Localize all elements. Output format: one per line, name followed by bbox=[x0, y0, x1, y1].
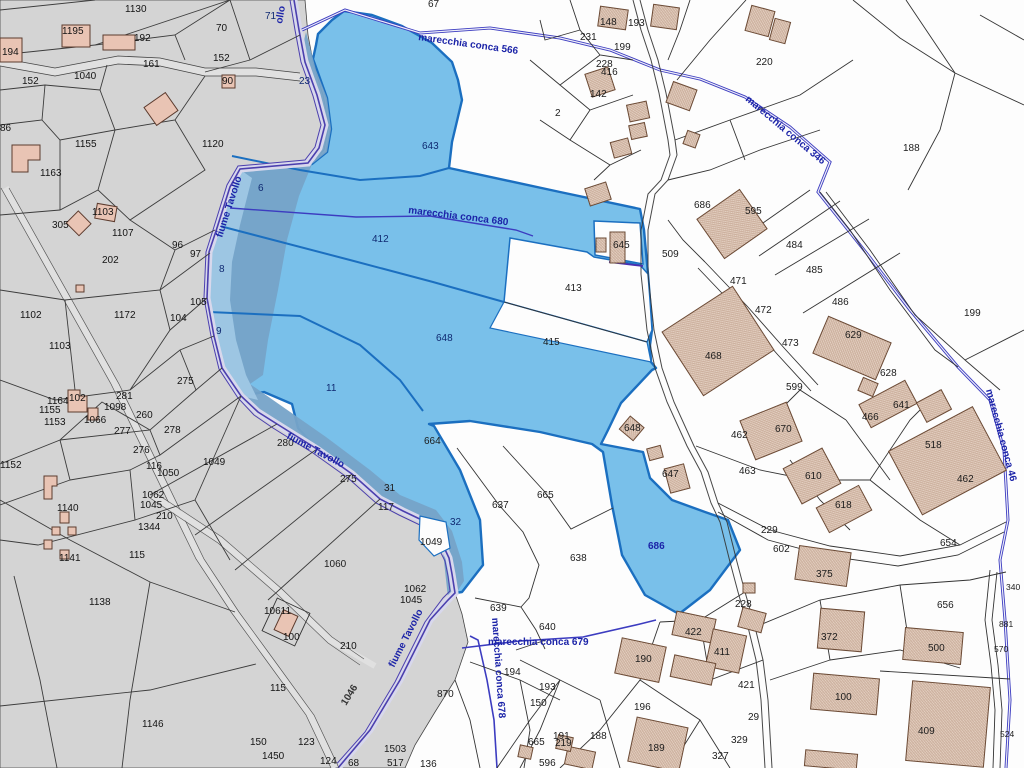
svg-text:881: 881 bbox=[999, 619, 1013, 629]
svg-text:32: 32 bbox=[450, 517, 462, 528]
svg-text:1040: 1040 bbox=[74, 71, 97, 82]
svg-text:275: 275 bbox=[340, 474, 357, 485]
svg-text:102: 102 bbox=[69, 393, 86, 404]
svg-text:194: 194 bbox=[504, 667, 521, 678]
svg-text:6: 6 bbox=[258, 183, 264, 194]
svg-text:199: 199 bbox=[614, 42, 631, 53]
svg-text:1045: 1045 bbox=[140, 500, 163, 511]
svg-text:664: 664 bbox=[424, 436, 441, 447]
svg-text:472: 472 bbox=[755, 305, 772, 316]
svg-text:468: 468 bbox=[705, 351, 722, 362]
svg-text:276: 276 bbox=[133, 445, 150, 456]
svg-text:485: 485 bbox=[806, 265, 823, 276]
svg-text:210: 210 bbox=[340, 641, 357, 652]
svg-text:1152: 1152 bbox=[0, 460, 22, 471]
svg-text:1120: 1120 bbox=[202, 139, 224, 150]
svg-text:1146: 1146 bbox=[142, 719, 164, 730]
svg-text:340: 340 bbox=[1006, 582, 1020, 592]
svg-text:136: 136 bbox=[420, 759, 437, 768]
svg-text:670: 670 bbox=[775, 424, 792, 435]
svg-text:70: 70 bbox=[216, 23, 228, 34]
svg-text:484: 484 bbox=[786, 240, 803, 251]
svg-text:643: 643 bbox=[422, 141, 439, 152]
svg-text:1103: 1103 bbox=[49, 341, 71, 352]
svg-text:462: 462 bbox=[731, 430, 748, 441]
svg-text:570: 570 bbox=[994, 644, 1008, 654]
svg-text:409: 409 bbox=[918, 726, 935, 737]
svg-text:115: 115 bbox=[129, 550, 145, 561]
svg-text:124: 124 bbox=[320, 756, 337, 767]
svg-text:462: 462 bbox=[957, 474, 974, 485]
svg-text:517: 517 bbox=[387, 758, 404, 768]
svg-text:8: 8 bbox=[219, 264, 225, 275]
svg-text:637: 637 bbox=[492, 500, 509, 511]
svg-text:1098: 1098 bbox=[104, 402, 127, 413]
svg-text:648: 648 bbox=[624, 423, 641, 434]
svg-text:117: 117 bbox=[378, 502, 394, 513]
svg-text:329: 329 bbox=[731, 735, 748, 746]
svg-text:463: 463 bbox=[739, 466, 756, 477]
svg-text:1141: 1141 bbox=[59, 553, 81, 564]
svg-text:411: 411 bbox=[714, 647, 730, 658]
svg-text:471: 471 bbox=[730, 276, 747, 287]
svg-text:638: 638 bbox=[570, 553, 587, 564]
svg-text:202: 202 bbox=[102, 255, 119, 266]
svg-text:618: 618 bbox=[835, 500, 852, 511]
svg-text:228: 228 bbox=[735, 599, 752, 610]
svg-text:150: 150 bbox=[250, 737, 267, 748]
svg-text:656: 656 bbox=[937, 600, 954, 611]
svg-text:305: 305 bbox=[52, 220, 69, 231]
svg-text:1503: 1503 bbox=[384, 744, 407, 755]
svg-text:486: 486 bbox=[832, 297, 849, 308]
svg-text:2: 2 bbox=[555, 108, 561, 119]
svg-text:524: 524 bbox=[1000, 729, 1014, 739]
svg-text:599: 599 bbox=[786, 382, 803, 393]
svg-text:marecchia conca 679: marecchia conca 679 bbox=[488, 637, 589, 648]
svg-text:67: 67 bbox=[428, 0, 440, 10]
svg-text:229: 229 bbox=[761, 525, 778, 536]
svg-text:188: 188 bbox=[590, 731, 607, 742]
svg-text:190: 190 bbox=[635, 654, 652, 665]
svg-text:199: 199 bbox=[964, 308, 981, 319]
svg-text:372: 372 bbox=[821, 632, 838, 643]
svg-text:473: 473 bbox=[782, 338, 799, 349]
svg-text:1045: 1045 bbox=[400, 595, 423, 606]
svg-text:275: 275 bbox=[177, 376, 194, 387]
svg-text:192: 192 bbox=[134, 33, 151, 44]
svg-text:415: 415 bbox=[543, 337, 560, 348]
svg-text:421: 421 bbox=[738, 680, 755, 691]
svg-text:648: 648 bbox=[436, 333, 453, 344]
svg-text:260: 260 bbox=[136, 410, 153, 421]
svg-text:188: 188 bbox=[903, 143, 920, 154]
svg-text:640: 640 bbox=[539, 622, 556, 633]
svg-text:189: 189 bbox=[648, 743, 665, 754]
svg-text:1450: 1450 bbox=[262, 751, 285, 762]
svg-text:11: 11 bbox=[326, 383, 337, 394]
svg-text:220: 220 bbox=[756, 57, 773, 68]
svg-text:148: 148 bbox=[600, 17, 617, 28]
svg-text:9: 9 bbox=[216, 326, 222, 337]
svg-text:68: 68 bbox=[348, 758, 360, 768]
svg-text:1066: 1066 bbox=[84, 415, 107, 426]
svg-text:1153: 1153 bbox=[44, 417, 66, 428]
svg-text:115: 115 bbox=[270, 683, 286, 694]
svg-text:1140: 1140 bbox=[57, 503, 79, 514]
svg-text:1195: 1195 bbox=[62, 26, 84, 37]
svg-text:1062: 1062 bbox=[404, 584, 427, 595]
svg-text:100: 100 bbox=[835, 692, 852, 703]
svg-text:281: 281 bbox=[116, 391, 133, 402]
svg-text:628: 628 bbox=[880, 368, 897, 379]
svg-text:413: 413 bbox=[565, 283, 582, 294]
svg-text:29: 29 bbox=[748, 712, 760, 723]
svg-text:665: 665 bbox=[528, 737, 545, 748]
svg-text:142: 142 bbox=[590, 89, 607, 100]
svg-text:327: 327 bbox=[712, 751, 729, 762]
svg-text:196: 196 bbox=[634, 702, 651, 713]
svg-text:654: 654 bbox=[940, 538, 957, 549]
svg-text:422: 422 bbox=[685, 627, 702, 638]
svg-text:31: 31 bbox=[384, 483, 396, 494]
svg-text:595: 595 bbox=[745, 206, 762, 217]
svg-text:210: 210 bbox=[156, 511, 173, 522]
svg-text:645: 645 bbox=[613, 240, 630, 251]
svg-text:100: 100 bbox=[283, 632, 300, 643]
svg-text:602: 602 bbox=[773, 544, 790, 555]
svg-text:412: 412 bbox=[372, 234, 389, 245]
svg-text:665: 665 bbox=[537, 490, 554, 501]
svg-text:97: 97 bbox=[190, 249, 202, 260]
svg-text:1060: 1060 bbox=[324, 559, 347, 570]
svg-text:647: 647 bbox=[662, 469, 679, 480]
svg-text:686: 686 bbox=[694, 200, 711, 211]
svg-text:23: 23 bbox=[299, 76, 311, 87]
svg-text:641: 641 bbox=[893, 400, 910, 411]
svg-text:1155: 1155 bbox=[75, 139, 97, 150]
svg-text:86: 86 bbox=[0, 123, 12, 134]
svg-text:870: 870 bbox=[437, 689, 454, 700]
svg-text:466: 466 bbox=[862, 412, 879, 423]
svg-text:1102: 1102 bbox=[20, 310, 42, 321]
svg-text:1103: 1103 bbox=[92, 207, 114, 218]
svg-text:278: 278 bbox=[164, 425, 181, 436]
svg-text:104: 104 bbox=[170, 313, 187, 324]
svg-text:1344: 1344 bbox=[138, 522, 161, 533]
svg-text:1163: 1163 bbox=[40, 168, 62, 179]
svg-text:194: 194 bbox=[2, 47, 19, 58]
svg-text:639: 639 bbox=[490, 603, 507, 614]
svg-text:375: 375 bbox=[816, 569, 833, 580]
svg-text:277: 277 bbox=[114, 426, 131, 437]
svg-text:509: 509 bbox=[662, 249, 679, 260]
svg-text:500: 500 bbox=[928, 643, 945, 654]
svg-text:416: 416 bbox=[601, 67, 618, 78]
svg-text:150: 150 bbox=[530, 698, 547, 709]
svg-text:1138: 1138 bbox=[89, 597, 111, 608]
svg-text:686: 686 bbox=[648, 541, 665, 552]
svg-text:152: 152 bbox=[22, 76, 39, 87]
svg-text:161: 161 bbox=[143, 59, 160, 70]
svg-text:1050: 1050 bbox=[157, 468, 180, 479]
svg-text:1130: 1130 bbox=[125, 4, 147, 15]
svg-text:105: 105 bbox=[190, 297, 207, 308]
svg-text:610: 610 bbox=[805, 471, 822, 482]
svg-text:1107: 1107 bbox=[112, 228, 134, 239]
svg-text:1172: 1172 bbox=[114, 310, 136, 321]
svg-text:596: 596 bbox=[539, 758, 556, 768]
svg-text:219: 219 bbox=[555, 738, 572, 749]
svg-text:629: 629 bbox=[845, 330, 862, 341]
svg-text:518: 518 bbox=[925, 440, 942, 451]
svg-text:10611: 10611 bbox=[264, 606, 292, 617]
svg-text:1049: 1049 bbox=[420, 537, 443, 548]
svg-text:123: 123 bbox=[298, 737, 315, 748]
svg-text:152: 152 bbox=[213, 53, 230, 64]
svg-text:193: 193 bbox=[628, 18, 645, 29]
svg-text:1155: 1155 bbox=[39, 405, 61, 416]
svg-text:90: 90 bbox=[222, 76, 234, 87]
svg-text:231: 231 bbox=[580, 32, 597, 43]
svg-text:96: 96 bbox=[172, 240, 184, 251]
svg-text:1049: 1049 bbox=[203, 457, 226, 468]
svg-text:193: 193 bbox=[539, 682, 556, 693]
